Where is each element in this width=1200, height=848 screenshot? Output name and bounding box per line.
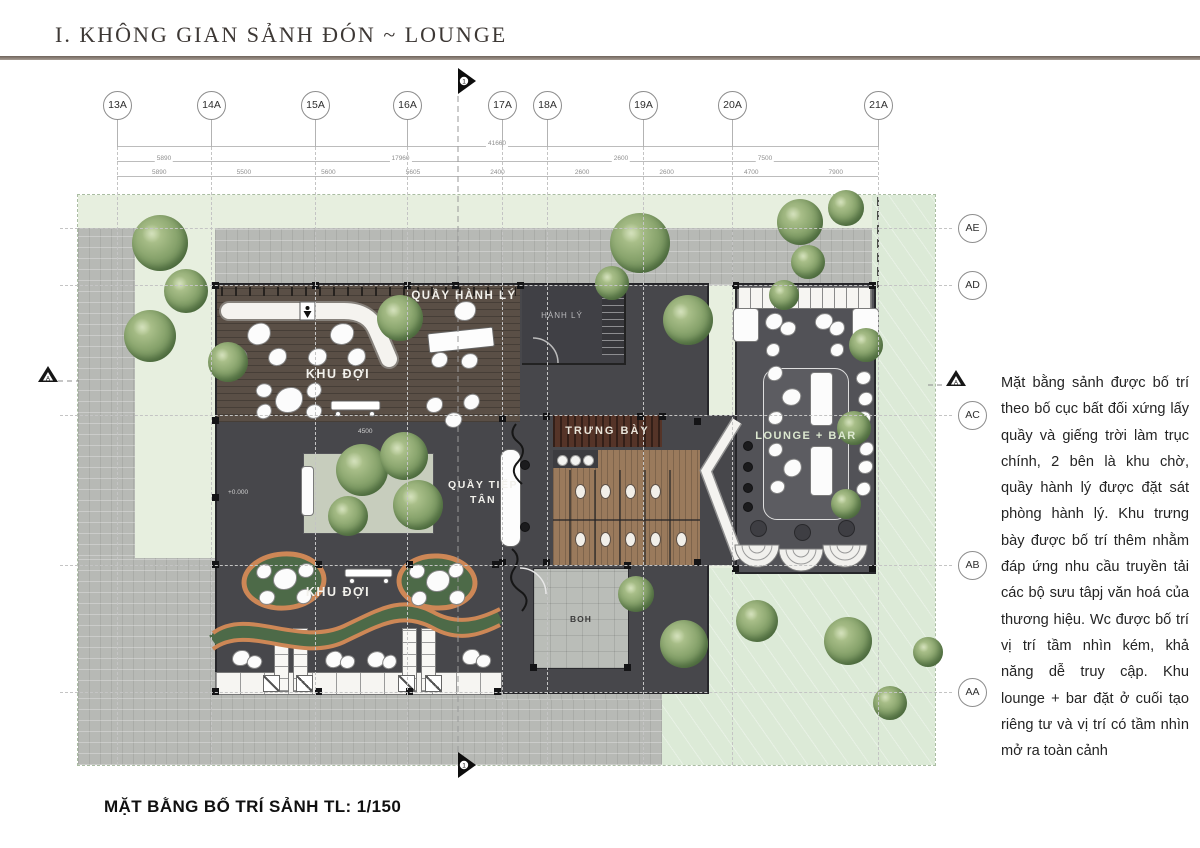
dim-tier3: 5605 xyxy=(371,169,456,176)
toilet-icon xyxy=(676,532,687,547)
tree-icon xyxy=(132,215,188,271)
grid-line-horizontal xyxy=(60,285,952,286)
slide: I. KHÔNG GIAN SẢNH ĐÓN ~ LOUNGE TRƯNG BÀ… xyxy=(0,0,1200,848)
round-marker xyxy=(520,522,530,532)
column-marker xyxy=(869,565,876,572)
side-table xyxy=(425,675,442,692)
column-marker xyxy=(694,418,701,425)
toilet-icon xyxy=(650,532,661,547)
tree-icon xyxy=(595,266,629,300)
display-band: TRƯNG BÀY xyxy=(553,415,662,447)
dim-tier2: 2600 xyxy=(612,155,630,162)
toilet-icon xyxy=(650,484,661,499)
grid-stem xyxy=(315,117,316,147)
grid-bubble-top: 18A xyxy=(533,91,562,120)
paving-bottom-band xyxy=(78,690,662,765)
grid-stem xyxy=(643,117,644,147)
waiting-label-top: KHU ĐỢI xyxy=(288,367,388,381)
tree-icon xyxy=(618,576,654,612)
grid-line-vertical xyxy=(547,117,548,765)
grid-stem xyxy=(211,117,212,147)
dim-tier3: 4700 xyxy=(709,169,794,176)
grid-line-horizontal xyxy=(60,228,952,229)
sofa xyxy=(733,308,759,342)
tree-icon xyxy=(328,496,368,536)
column-marker xyxy=(212,417,219,424)
section-flag-top: 1 xyxy=(458,68,476,94)
grid-line-horizontal xyxy=(60,415,952,416)
reception-label: QUẦY TIẾP TÂN xyxy=(443,478,523,508)
round-marker xyxy=(570,455,581,466)
tree-icon xyxy=(913,637,943,667)
grid-line-horizontal xyxy=(60,692,952,693)
dim-tier3: 5600 xyxy=(286,169,371,176)
planter-dim: 4500 xyxy=(358,428,372,435)
grid-bubble-top: 16A xyxy=(393,91,422,120)
toilet-icon xyxy=(600,532,611,547)
grid-line-vertical xyxy=(315,117,316,765)
dim-line-tier3 xyxy=(117,176,878,177)
grid-line-vertical xyxy=(732,117,733,765)
paving-bottom-left xyxy=(78,558,215,692)
grid-bubble-right: AD xyxy=(958,271,987,300)
wing-bench xyxy=(737,287,872,309)
grid-stem xyxy=(407,117,408,147)
dim-tier3: 5500 xyxy=(202,169,287,176)
toilet-icon xyxy=(625,484,636,499)
plan-caption: MẶT BẰNG BỐ TRÍ SẢNH TL: 1/150 xyxy=(104,797,401,817)
grid-line-vertical xyxy=(211,117,212,765)
waiting-label-bottom: KHU ĐỢI xyxy=(288,585,388,599)
sofa xyxy=(301,466,314,516)
grid-bubble-right: AA xyxy=(958,678,987,707)
dim-tier2: 17960 xyxy=(389,155,411,162)
dim-tier3: 2400 xyxy=(455,169,540,176)
tree-icon xyxy=(208,342,248,382)
grid-bubble-top: 15A xyxy=(301,91,330,120)
grid-stem xyxy=(547,117,548,147)
grid-line-vertical xyxy=(407,117,408,765)
grid-bubble-top: 13A xyxy=(103,91,132,120)
round-marker xyxy=(743,502,753,512)
grid-stem xyxy=(878,117,879,147)
tree-icon xyxy=(736,600,778,642)
page-title: I. KHÔNG GIAN SẢNH ĐÓN ~ LOUNGE xyxy=(55,22,507,48)
tree-icon xyxy=(791,245,825,279)
column-marker xyxy=(212,494,219,501)
grid-bubble-right: AC xyxy=(958,401,987,430)
round-marker xyxy=(520,460,530,470)
round-marker xyxy=(743,462,753,472)
annotation-paragraph: Mặt bằng sảnh được bố trí theo bố cục bấ… xyxy=(1001,370,1189,764)
round-marker xyxy=(557,455,568,466)
grid-bubble-top: 17A xyxy=(488,91,517,120)
svg-text:A: A xyxy=(46,377,50,383)
grid-stem xyxy=(502,117,503,147)
toilet-icon xyxy=(625,532,636,547)
round-marker xyxy=(838,520,855,537)
svg-text:A: A xyxy=(954,381,958,387)
dim-tier2: 5890 xyxy=(155,155,173,162)
grid-bubble-top: 19A xyxy=(629,91,658,120)
tree-icon xyxy=(380,432,428,480)
column-marker xyxy=(624,664,631,671)
round-marker xyxy=(743,441,753,451)
title-underline xyxy=(0,56,1200,60)
dim-tier3: 5890 xyxy=(117,169,202,176)
side-table xyxy=(263,675,280,692)
column-marker xyxy=(530,664,537,671)
dim-total: 41660 xyxy=(486,140,508,147)
toilet-icon xyxy=(575,484,586,499)
lounge-bar-label: LOUNGE + BAR xyxy=(746,430,866,442)
boh-label: BOH xyxy=(570,614,592,624)
wc-block xyxy=(553,450,700,565)
dim-tier3: 7900 xyxy=(794,169,879,176)
grid-bubble-right: AE xyxy=(958,214,987,243)
tree-icon xyxy=(663,295,713,345)
tree-icon xyxy=(124,310,176,362)
grid-line-vertical xyxy=(878,117,879,765)
stair-icon xyxy=(602,293,624,355)
toilet-icon xyxy=(575,532,586,547)
grid-bubble-top: 21A xyxy=(864,91,893,120)
side-table xyxy=(296,675,313,692)
round-marker xyxy=(750,520,767,537)
dim-tier3: 2600 xyxy=(540,169,625,176)
tree-icon xyxy=(393,480,443,530)
toilet-icon xyxy=(600,484,611,499)
grid-bubble-right: AB xyxy=(958,551,987,580)
round-marker xyxy=(794,524,811,541)
dim-tier3-row: 589055005600560524002600260047007900 xyxy=(117,169,878,176)
round-marker xyxy=(583,455,594,466)
grid-line-vertical xyxy=(643,117,644,765)
grid-line-vertical xyxy=(117,117,118,765)
tree-icon xyxy=(831,489,861,519)
elevation-marker-left: A xyxy=(38,366,79,383)
grid-bubble-top: 14A xyxy=(197,91,226,120)
grid-stem xyxy=(117,117,118,147)
dim-tier2: 7500 xyxy=(756,155,774,162)
grid-bubble-top: 20A xyxy=(718,91,747,120)
grid-stem xyxy=(732,117,733,147)
grid-line-horizontal xyxy=(60,565,952,566)
svg-text:1: 1 xyxy=(462,79,466,86)
round-marker xyxy=(743,483,753,493)
tree-icon xyxy=(828,190,864,226)
dim-tier3: 2600 xyxy=(624,169,709,176)
luggage-room-label: HÀNH LÝ xyxy=(532,311,592,320)
sofa xyxy=(810,372,833,426)
tree-icon xyxy=(610,213,670,273)
grid-line-vertical xyxy=(502,117,503,765)
luggage-counter-label: QUẦY HÀNH LÝ xyxy=(398,290,530,302)
sofa xyxy=(810,446,833,496)
tree-icon xyxy=(660,620,708,668)
tree-icon xyxy=(824,617,872,665)
level-marker: +0.000 xyxy=(228,489,248,496)
tree-icon xyxy=(777,199,823,245)
tree-icon xyxy=(164,269,208,313)
display-label: TRƯNG BÀY xyxy=(565,425,650,437)
column-marker xyxy=(732,565,739,572)
